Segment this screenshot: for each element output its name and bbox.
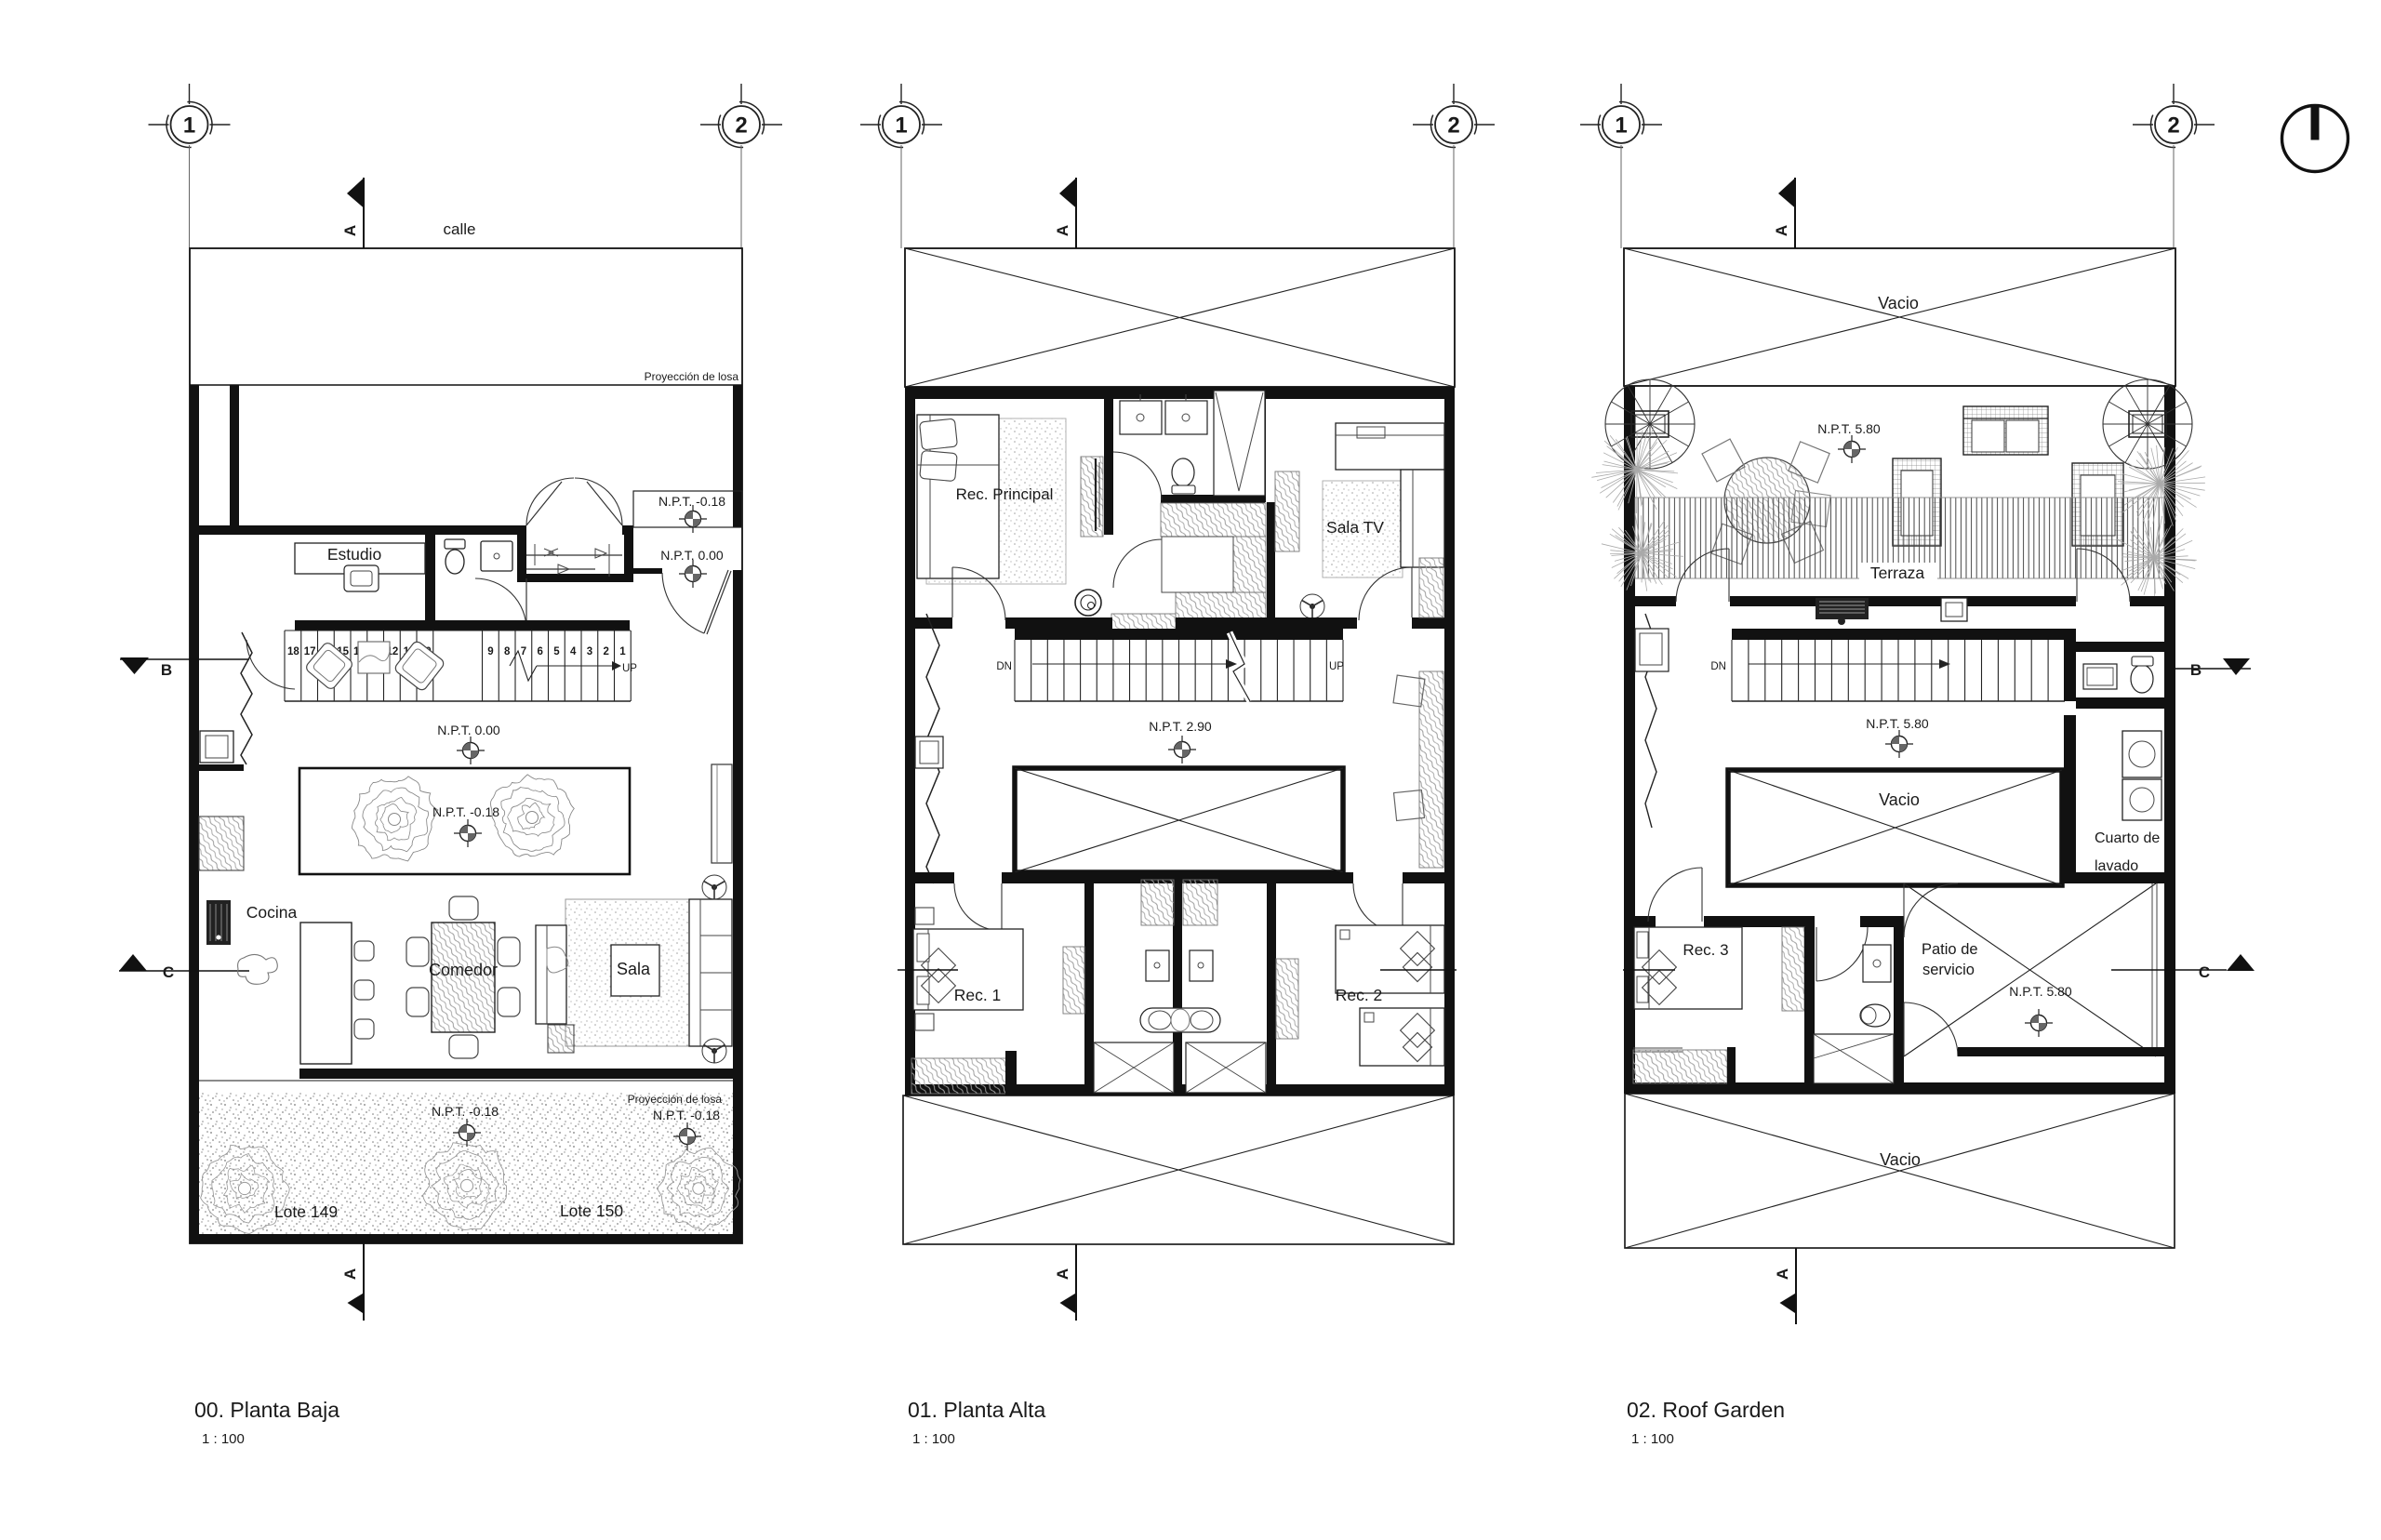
svg-text:C: C: [163, 963, 174, 981]
svg-text:DN: DN: [996, 661, 1012, 672]
svg-text:Proyección de losa: Proyección de losa: [645, 370, 739, 383]
svg-text:B: B: [161, 661, 172, 679]
svg-text:Sala TV: Sala TV: [1326, 518, 1384, 537]
svg-text:Sala: Sala: [617, 960, 651, 978]
svg-text:N.P.T. -0.18: N.P.T. -0.18: [653, 1108, 720, 1122]
svg-text:1 : 100: 1 : 100: [912, 1431, 955, 1447]
svg-text:7: 7: [521, 646, 526, 657]
svg-text:Rec. 3: Rec. 3: [1683, 941, 1728, 959]
svg-text:2: 2: [735, 113, 747, 139]
svg-text:2: 2: [603, 646, 608, 657]
svg-text:lavado: lavado: [2095, 858, 2138, 874]
svg-text:1 : 100: 1 : 100: [1631, 1431, 1674, 1447]
svg-text:DN: DN: [1710, 661, 1726, 672]
svg-text:B: B: [2190, 661, 2201, 679]
svg-text:2: 2: [2167, 113, 2179, 139]
svg-text:1: 1: [183, 113, 195, 139]
svg-text:02. Roof Garden: 02. Roof Garden: [1627, 1398, 1785, 1422]
svg-text:N.P.T. -0.18: N.P.T. -0.18: [432, 1104, 499, 1119]
svg-text:1: 1: [619, 646, 626, 657]
svg-text:1 : 100: 1 : 100: [202, 1431, 245, 1447]
svg-text:UP: UP: [1329, 661, 1344, 672]
svg-text:Patio de: Patio de: [1922, 941, 1978, 958]
svg-text:Vacio: Vacio: [1878, 294, 1919, 312]
svg-text:2: 2: [1447, 113, 1459, 139]
svg-text:1: 1: [895, 113, 907, 139]
svg-text:UP: UP: [622, 663, 637, 674]
svg-text:N.P.T. 0.00: N.P.T. 0.00: [437, 723, 500, 737]
svg-text:A: A: [1773, 225, 1790, 236]
svg-text:N.P.T. 5.80: N.P.T. 5.80: [1817, 421, 1881, 436]
svg-text:A: A: [1054, 1268, 1071, 1280]
svg-text:Terraza: Terraza: [1870, 564, 1925, 582]
svg-text:4: 4: [570, 646, 577, 657]
svg-text:N.P.T. -0.18: N.P.T. -0.18: [432, 804, 499, 819]
svg-text:N.P.T. 0.00: N.P.T. 0.00: [660, 548, 724, 563]
svg-text:Proyección de losa: Proyección de losa: [628, 1093, 723, 1106]
svg-text:9: 9: [487, 646, 493, 657]
svg-text:5: 5: [553, 646, 560, 657]
svg-text:Lote 150: Lote 150: [560, 1201, 623, 1220]
svg-text:N.P.T. -0.18: N.P.T. -0.18: [658, 494, 725, 509]
svg-text:A: A: [1774, 1268, 1791, 1280]
svg-text:6: 6: [537, 646, 542, 657]
svg-text:N.P.T. 5.80: N.P.T. 5.80: [1866, 716, 1929, 731]
svg-text:N.P.T. 5.80: N.P.T. 5.80: [2009, 984, 2072, 999]
svg-text:A: A: [341, 1268, 359, 1280]
svg-text:3: 3: [587, 646, 592, 657]
svg-text:18: 18: [287, 646, 299, 657]
svg-text:Rec. Principal: Rec. Principal: [956, 485, 1054, 503]
svg-text:Lote 149: Lote 149: [274, 1202, 338, 1221]
svg-text:Comedor: Comedor: [429, 961, 498, 979]
svg-text:C: C: [2199, 963, 2210, 981]
svg-text:Cuarto de: Cuarto de: [2095, 830, 2160, 846]
svg-text:8: 8: [504, 646, 511, 657]
svg-text:Cocina: Cocina: [246, 903, 298, 922]
svg-text:N.P.T. 2.90: N.P.T. 2.90: [1149, 719, 1212, 734]
svg-text:servicio: servicio: [1922, 962, 1975, 978]
svg-text:Estudio: Estudio: [327, 545, 381, 564]
svg-text:01. Planta Alta: 01. Planta Alta: [908, 1398, 1046, 1422]
svg-text:Vacio: Vacio: [1879, 790, 1920, 809]
svg-text:Rec. 2: Rec. 2: [1336, 986, 1383, 1004]
svg-text:A: A: [1054, 225, 1071, 236]
svg-text:Vacio: Vacio: [1880, 1150, 1921, 1169]
svg-text:Rec. 1: Rec. 1: [954, 986, 1002, 1004]
svg-text:00. Planta Baja: 00. Planta Baja: [194, 1398, 339, 1422]
svg-text:1: 1: [1615, 113, 1627, 139]
svg-text:A: A: [341, 225, 359, 236]
svg-text:calle: calle: [444, 220, 476, 238]
